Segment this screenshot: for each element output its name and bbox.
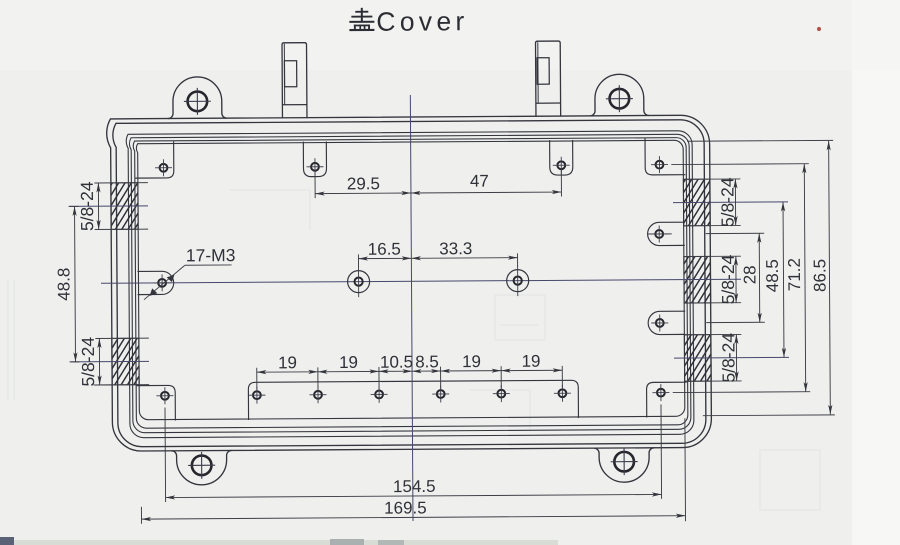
svg-text:19: 19	[521, 352, 540, 371]
svg-text:5/8-24: 5/8-24	[718, 254, 738, 304]
svg-text:48.5: 48.5	[763, 259, 782, 292]
svg-text:48.8: 48.8	[54, 268, 73, 301]
svg-text:19: 19	[278, 353, 297, 372]
svg-text:5/8-24: 5/8-24	[78, 337, 98, 387]
svg-text:5/8-24: 5/8-24	[77, 181, 97, 231]
svg-text:47: 47	[470, 172, 489, 191]
svg-text:16.5: 16.5	[368, 240, 401, 259]
svg-text:5/8-24: 5/8-24	[718, 333, 738, 383]
svg-text:33.3: 33.3	[439, 239, 472, 258]
svg-text:154.5: 154.5	[393, 477, 436, 496]
svg-text:19: 19	[462, 352, 481, 371]
svg-text:28: 28	[740, 265, 759, 284]
svg-text:71.2: 71.2	[785, 258, 804, 291]
svg-text:19: 19	[339, 353, 358, 372]
svg-text:86.5: 86.5	[810, 259, 829, 292]
svg-text:169.5: 169.5	[384, 498, 427, 517]
svg-text:17-M3: 17-M3	[186, 245, 236, 265]
svg-text:10.5: 10.5	[380, 352, 413, 371]
svg-text:Cover: Cover	[376, 6, 468, 37]
svg-text:8.5: 8.5	[415, 352, 439, 371]
svg-text:5/8-24: 5/8-24	[717, 177, 737, 227]
svg-text:29.5: 29.5	[347, 174, 380, 193]
